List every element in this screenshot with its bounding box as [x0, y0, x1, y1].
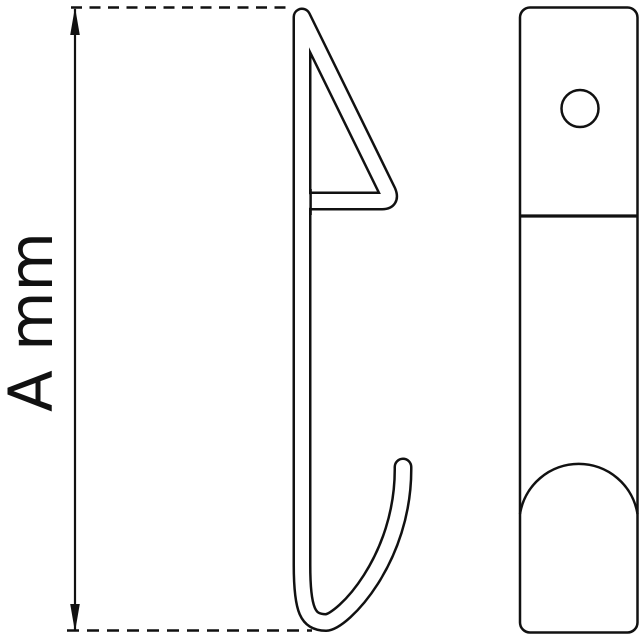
dimension-arrowhead-bottom-icon — [70, 604, 80, 632]
dimension-annotation: A mm — [0, 7, 312, 632]
hook-side-view — [302, 17, 403, 623]
front-body-outline — [520, 8, 638, 633]
dimension-label: A mm — [0, 232, 67, 412]
hook-profile-core — [302, 17, 403, 623]
dimension-arrowhead-top-icon — [70, 7, 80, 35]
mounting-hole — [562, 90, 599, 127]
hook-technical-drawing: A mm — [0, 0, 640, 640]
hook-front-view — [520, 8, 638, 633]
hook-arch-curve — [520, 464, 638, 514]
technical-drawing-page: A mm — [0, 0, 640, 640]
